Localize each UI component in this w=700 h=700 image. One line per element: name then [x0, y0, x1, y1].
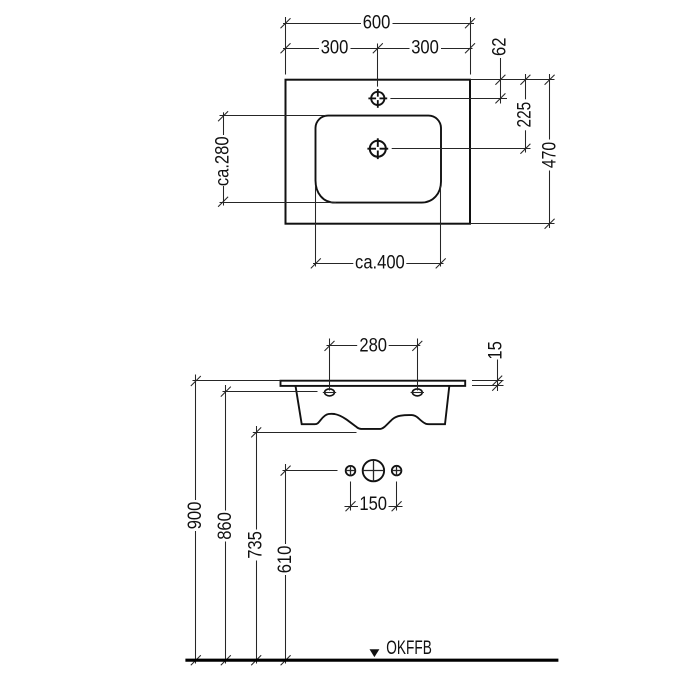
svg-text:150: 150: [359, 493, 387, 515]
svg-text:600: 600: [363, 11, 391, 33]
svg-text:62: 62: [488, 38, 510, 56]
svg-text:280: 280: [359, 334, 387, 356]
svg-text:300: 300: [321, 36, 349, 58]
svg-text:470: 470: [538, 142, 560, 168]
svg-text:860: 860: [214, 512, 236, 540]
svg-text:ca.400: ca.400: [355, 251, 405, 273]
svg-text:610: 610: [274, 546, 296, 574]
svg-text:ca.280: ca.280: [211, 136, 233, 186]
svg-text:900: 900: [184, 502, 206, 530]
svg-text:225: 225: [513, 102, 535, 128]
svg-text:15: 15: [484, 341, 506, 359]
svg-text:735: 735: [244, 531, 266, 559]
svg-text:300: 300: [411, 36, 439, 58]
svg-text:OKFFB: OKFFB: [386, 637, 432, 659]
